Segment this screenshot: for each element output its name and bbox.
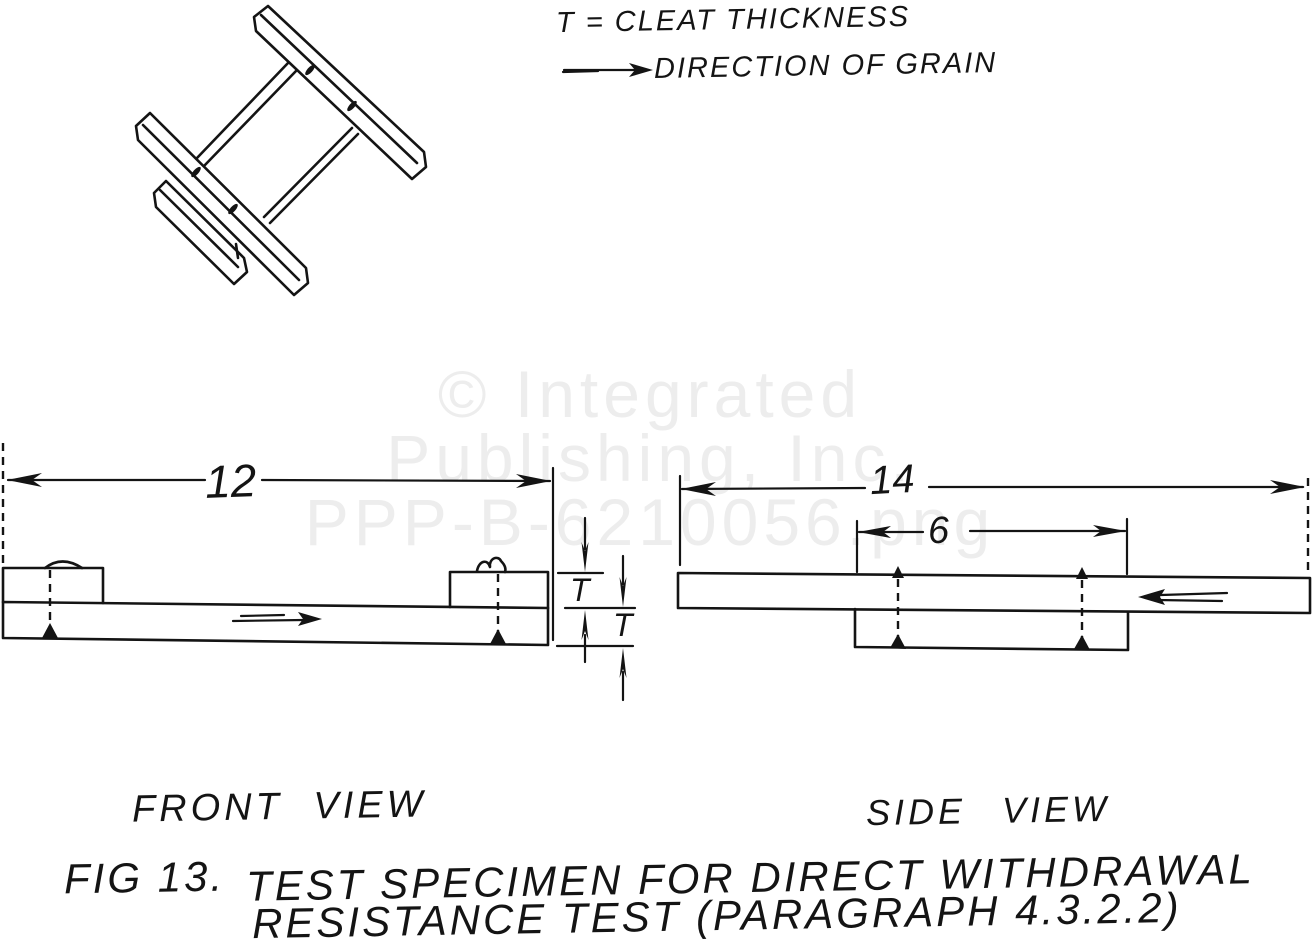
side-nail-left-clinch	[890, 634, 906, 649]
side-nail-right-clinch	[1074, 635, 1090, 650]
front-view-label: FRONT VIEW	[132, 783, 427, 831]
side-nail-right-head	[1076, 567, 1088, 579]
front-nail-right-clinch	[490, 629, 506, 644]
front-view-cleat-thickness-dimension: T	[570, 572, 590, 609]
legend-grain-direction: DIRECTION OF GRAIN	[654, 47, 998, 86]
iso-nail-5	[236, 244, 238, 258]
iso-board-right	[264, 128, 358, 223]
legend-cleat-thickness: T = CLEAT THICKNESS	[556, 1, 911, 40]
side-dim6-line	[859, 531, 1125, 532]
side-dim14-line	[682, 487, 1303, 489]
side-view-width-dimension: 14	[869, 457, 916, 504]
isometric-view	[136, 6, 426, 295]
side-nail-left-head	[892, 566, 904, 578]
side-grain-arrow-head	[1138, 589, 1165, 605]
front-view-width-dimension: 12	[204, 453, 257, 509]
front-cleat-right-nailhead	[477, 558, 505, 572]
front-view-board-thickness-dimension: T	[613, 607, 633, 644]
legend-grain-arrow	[563, 63, 653, 77]
front-grain-arrow-tail	[233, 615, 303, 621]
grain-arrow-tail-2	[563, 71, 598, 72]
side-view-cleat-spacing-dimension: 6	[927, 510, 950, 554]
side-view-drawing	[678, 476, 1310, 650]
scanned-figure-page: © Integrated Publishing, Inc. PPP-B-6210…	[0, 0, 1313, 941]
figure-number: FIG 13.	[64, 853, 226, 904]
front-view-drawing	[3, 443, 635, 700]
front-board	[3, 602, 548, 645]
iso-nail-1	[304, 63, 317, 76]
front-dim12-line	[8, 480, 550, 481]
front-cleat-left	[3, 568, 103, 603]
side-view-label: SIDE VIEW	[866, 788, 1111, 834]
side-grain-arrow-tail	[1157, 593, 1227, 601]
front-nail-left-clinch	[42, 623, 58, 638]
iso-board-left	[197, 63, 296, 166]
